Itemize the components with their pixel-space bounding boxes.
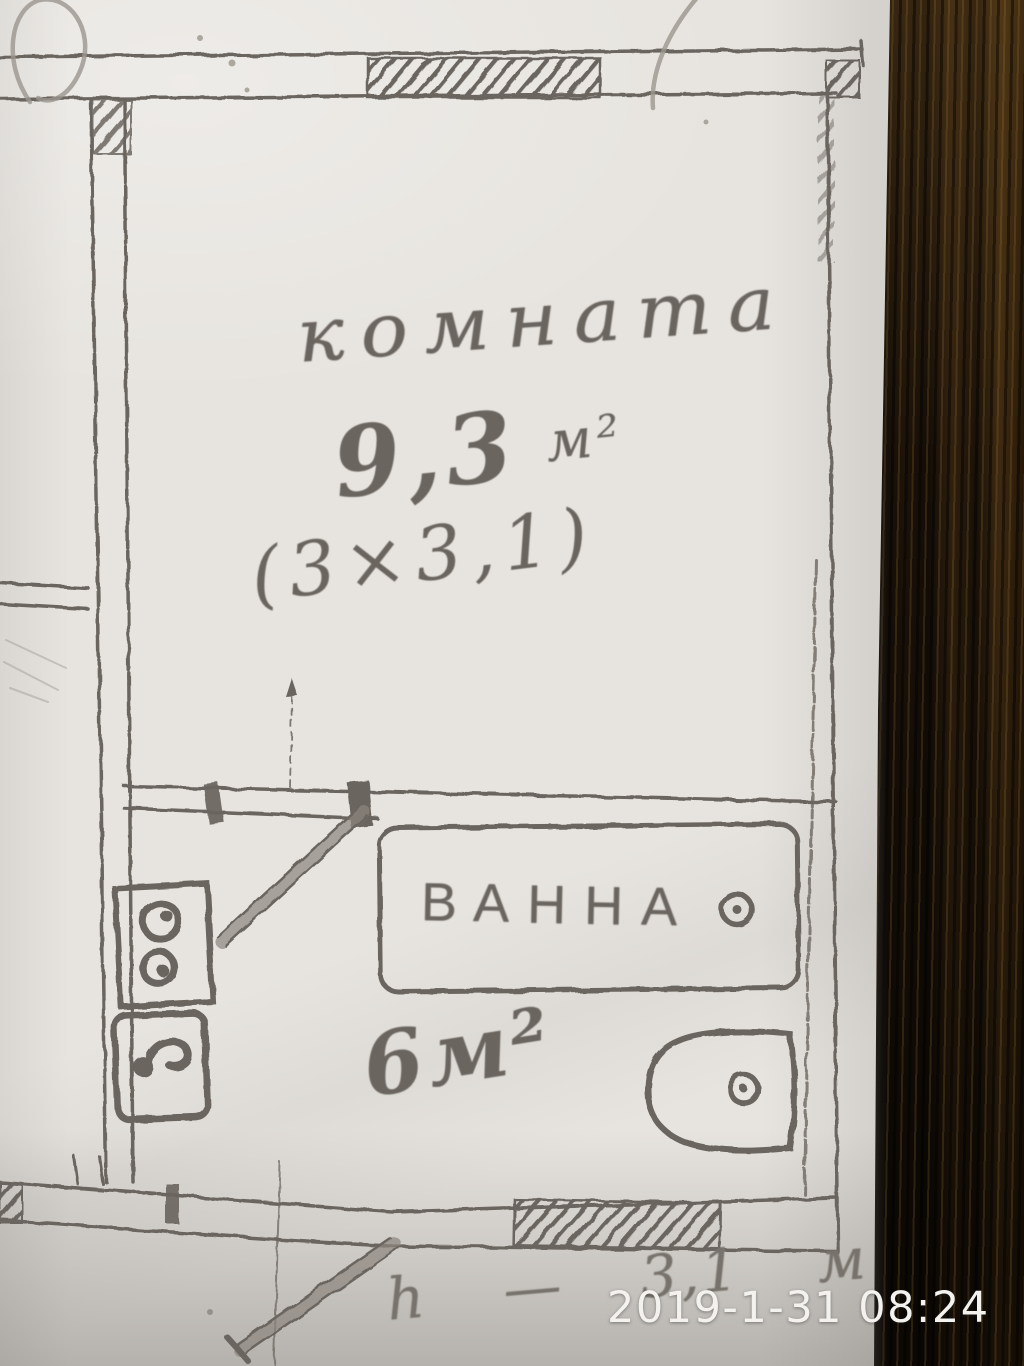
wall-right-outer bbox=[827, 90, 838, 1252]
wall-right-inner bbox=[804, 560, 816, 1196]
wood-table-background bbox=[874, 0, 1024, 1366]
wall-left-outer bbox=[91, 99, 106, 1182]
stub-wall-left-2 bbox=[0, 604, 88, 609]
bathroom-door-swing bbox=[218, 807, 367, 946]
room-area-value: 9,3 bbox=[328, 389, 524, 521]
threshold-line bbox=[274, 1162, 280, 1366]
interior-wall-line-1 bbox=[124, 786, 836, 802]
room-area-unit: м² bbox=[542, 402, 627, 475]
floor-plan-drawing bbox=[0, 0, 1024, 1366]
wall-bottom-left-hatch bbox=[0, 1183, 22, 1223]
wall-left-top-hatch bbox=[93, 100, 131, 154]
wall-bottom-dark-tick bbox=[166, 1184, 179, 1224]
pencil-stroke-top bbox=[653, 0, 702, 108]
interior-wall-line-2 bbox=[124, 808, 378, 819]
wall-left-bottom-tick-1 bbox=[74, 1156, 78, 1184]
entrance-door-swing bbox=[228, 1238, 398, 1362]
wall-left-inner bbox=[124, 99, 133, 1182]
photo-of-floor-plan: комната 9,3м² (3×3,1) ВАННА 6м² h — 3,1 … bbox=[0, 0, 1024, 1366]
stub-wall-left-1 bbox=[0, 583, 88, 588]
bathtub-label: ВАННА bbox=[420, 871, 696, 939]
pencil-scribbles bbox=[4, 0, 709, 1315]
wall-left-bottom-tick-2 bbox=[99, 1156, 103, 1184]
wall-top-outer bbox=[0, 49, 862, 57]
pencil-scratches-left bbox=[4, 640, 66, 702]
washbasin-icon bbox=[648, 1031, 795, 1150]
corner-hatch-top-right bbox=[826, 60, 859, 97]
dimension-line-vertical bbox=[286, 678, 298, 788]
sink-icon bbox=[114, 1012, 208, 1119]
pencil-loop-top-left bbox=[13, 0, 85, 102]
wall-top-end-tick bbox=[861, 41, 863, 65]
ink-linework bbox=[0, 41, 863, 1366]
window-wall-hatch-top bbox=[368, 58, 600, 98]
wall-right-hatch-ticks bbox=[818, 94, 834, 262]
camera-timestamp: 2019-1-31 08:24 bbox=[607, 1283, 990, 1333]
